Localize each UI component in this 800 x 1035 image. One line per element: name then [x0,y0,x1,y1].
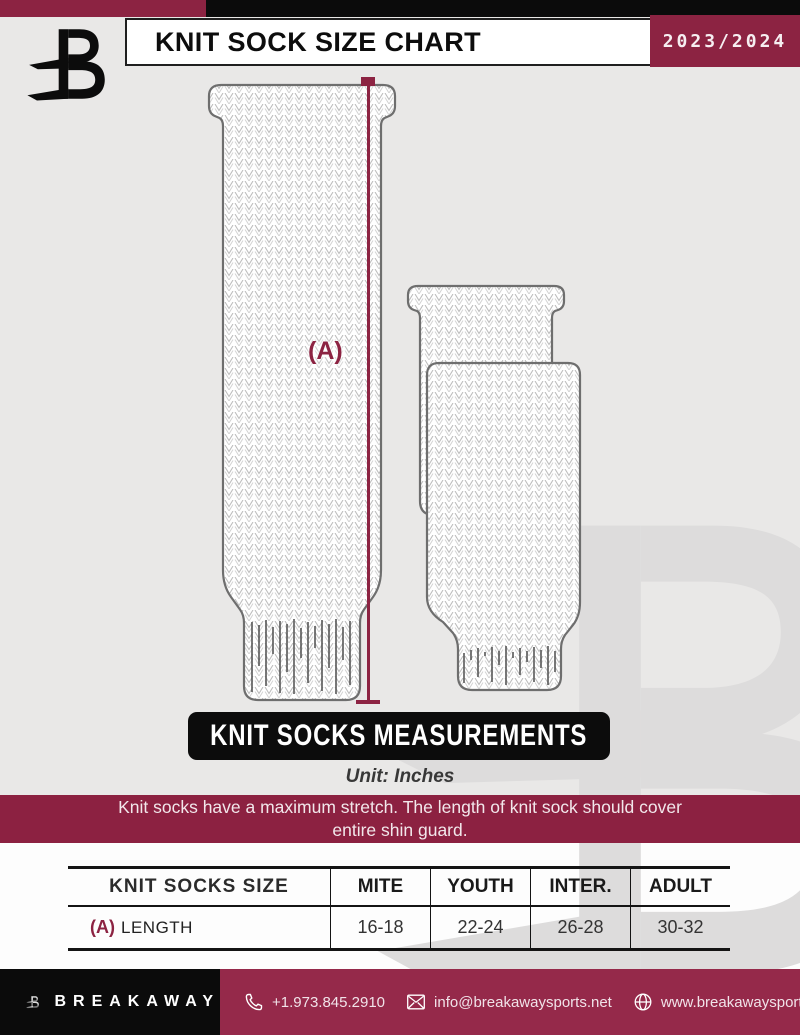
table-value-inter: 26-28 [530,907,630,948]
table-header-inter: INTER. [530,869,630,907]
footer-email-address: info@breakawaysports.net [434,994,612,1011]
sock-front-illustration [424,359,584,699]
table-header-youth: YOUTH [430,869,530,907]
season-label: 2023/2024 [663,31,788,52]
notice-line-1: Knit socks have a maximum stretch. The l… [118,796,682,819]
footer-brand-block: BREAKAWAY [0,969,220,1035]
brand-logo-icon [26,24,114,104]
notice-line-2: entire shin guard. [332,819,467,842]
phone-icon [244,992,264,1012]
footer-phone: +1.973.845.2910 [244,992,385,1012]
table-value-mite: 16-18 [330,907,430,948]
notice-band: Knit socks have a maximum stretch. The l… [0,795,800,843]
email-icon [406,992,426,1012]
table-row-label-prefix: (A) [90,917,115,938]
footer-phone-number: +1.973.845.2910 [272,994,385,1011]
table-value-adult: 30-32 [630,907,730,948]
footer-brand-name: BREAKAWAY [54,993,220,1011]
top-strip-maroon [0,0,206,17]
page-root: { "header": { "title": "KNIT SOCK SIZE C… [0,0,800,1035]
footer-contact-bar: +1.973.845.2910 info@breakawaysports.net… [220,969,800,1035]
table-header-mite: MITE [330,869,430,907]
footer-logo-icon [26,982,40,1022]
measurement-line-cap-bottom [356,700,380,704]
measurements-banner: KNIT SOCKS MEASUREMENTS [188,712,610,760]
footer-website: www.breakawaysports.net [633,992,800,1012]
title-box: KNIT SOCK SIZE CHART [125,18,652,66]
footer-email: info@breakawaysports.net [406,992,612,1012]
measurement-label-a: (A) [308,337,343,366]
table-row-label: LENGTH [121,918,193,938]
footer: BREAKAWAY +1.973.845.2910 info@breakaway… [0,969,800,1035]
measurements-banner-title: KNIT SOCKS MEASUREMENTS [210,719,587,753]
measurement-line [367,77,370,704]
table-row-label-cell: (A) LENGTH [68,907,330,948]
table-header-size: KNIT SOCKS SIZE [68,869,330,907]
season-badge: 2023/2024 [650,15,800,67]
globe-icon [633,992,653,1012]
page-title: KNIT SOCK SIZE CHART [155,27,481,58]
sock-large-illustration [204,82,400,706]
unit-label-wrap: Unit: Inches [0,766,800,788]
unit-label: Unit: Inches [346,766,455,787]
table-value-youth: 22-24 [430,907,530,948]
footer-website-url: www.breakawaysports.net [661,994,800,1011]
table-header-adult: ADULT [630,869,730,907]
size-table: KNIT SOCKS SIZE MITE YOUTH INTER. ADULT … [68,866,730,951]
